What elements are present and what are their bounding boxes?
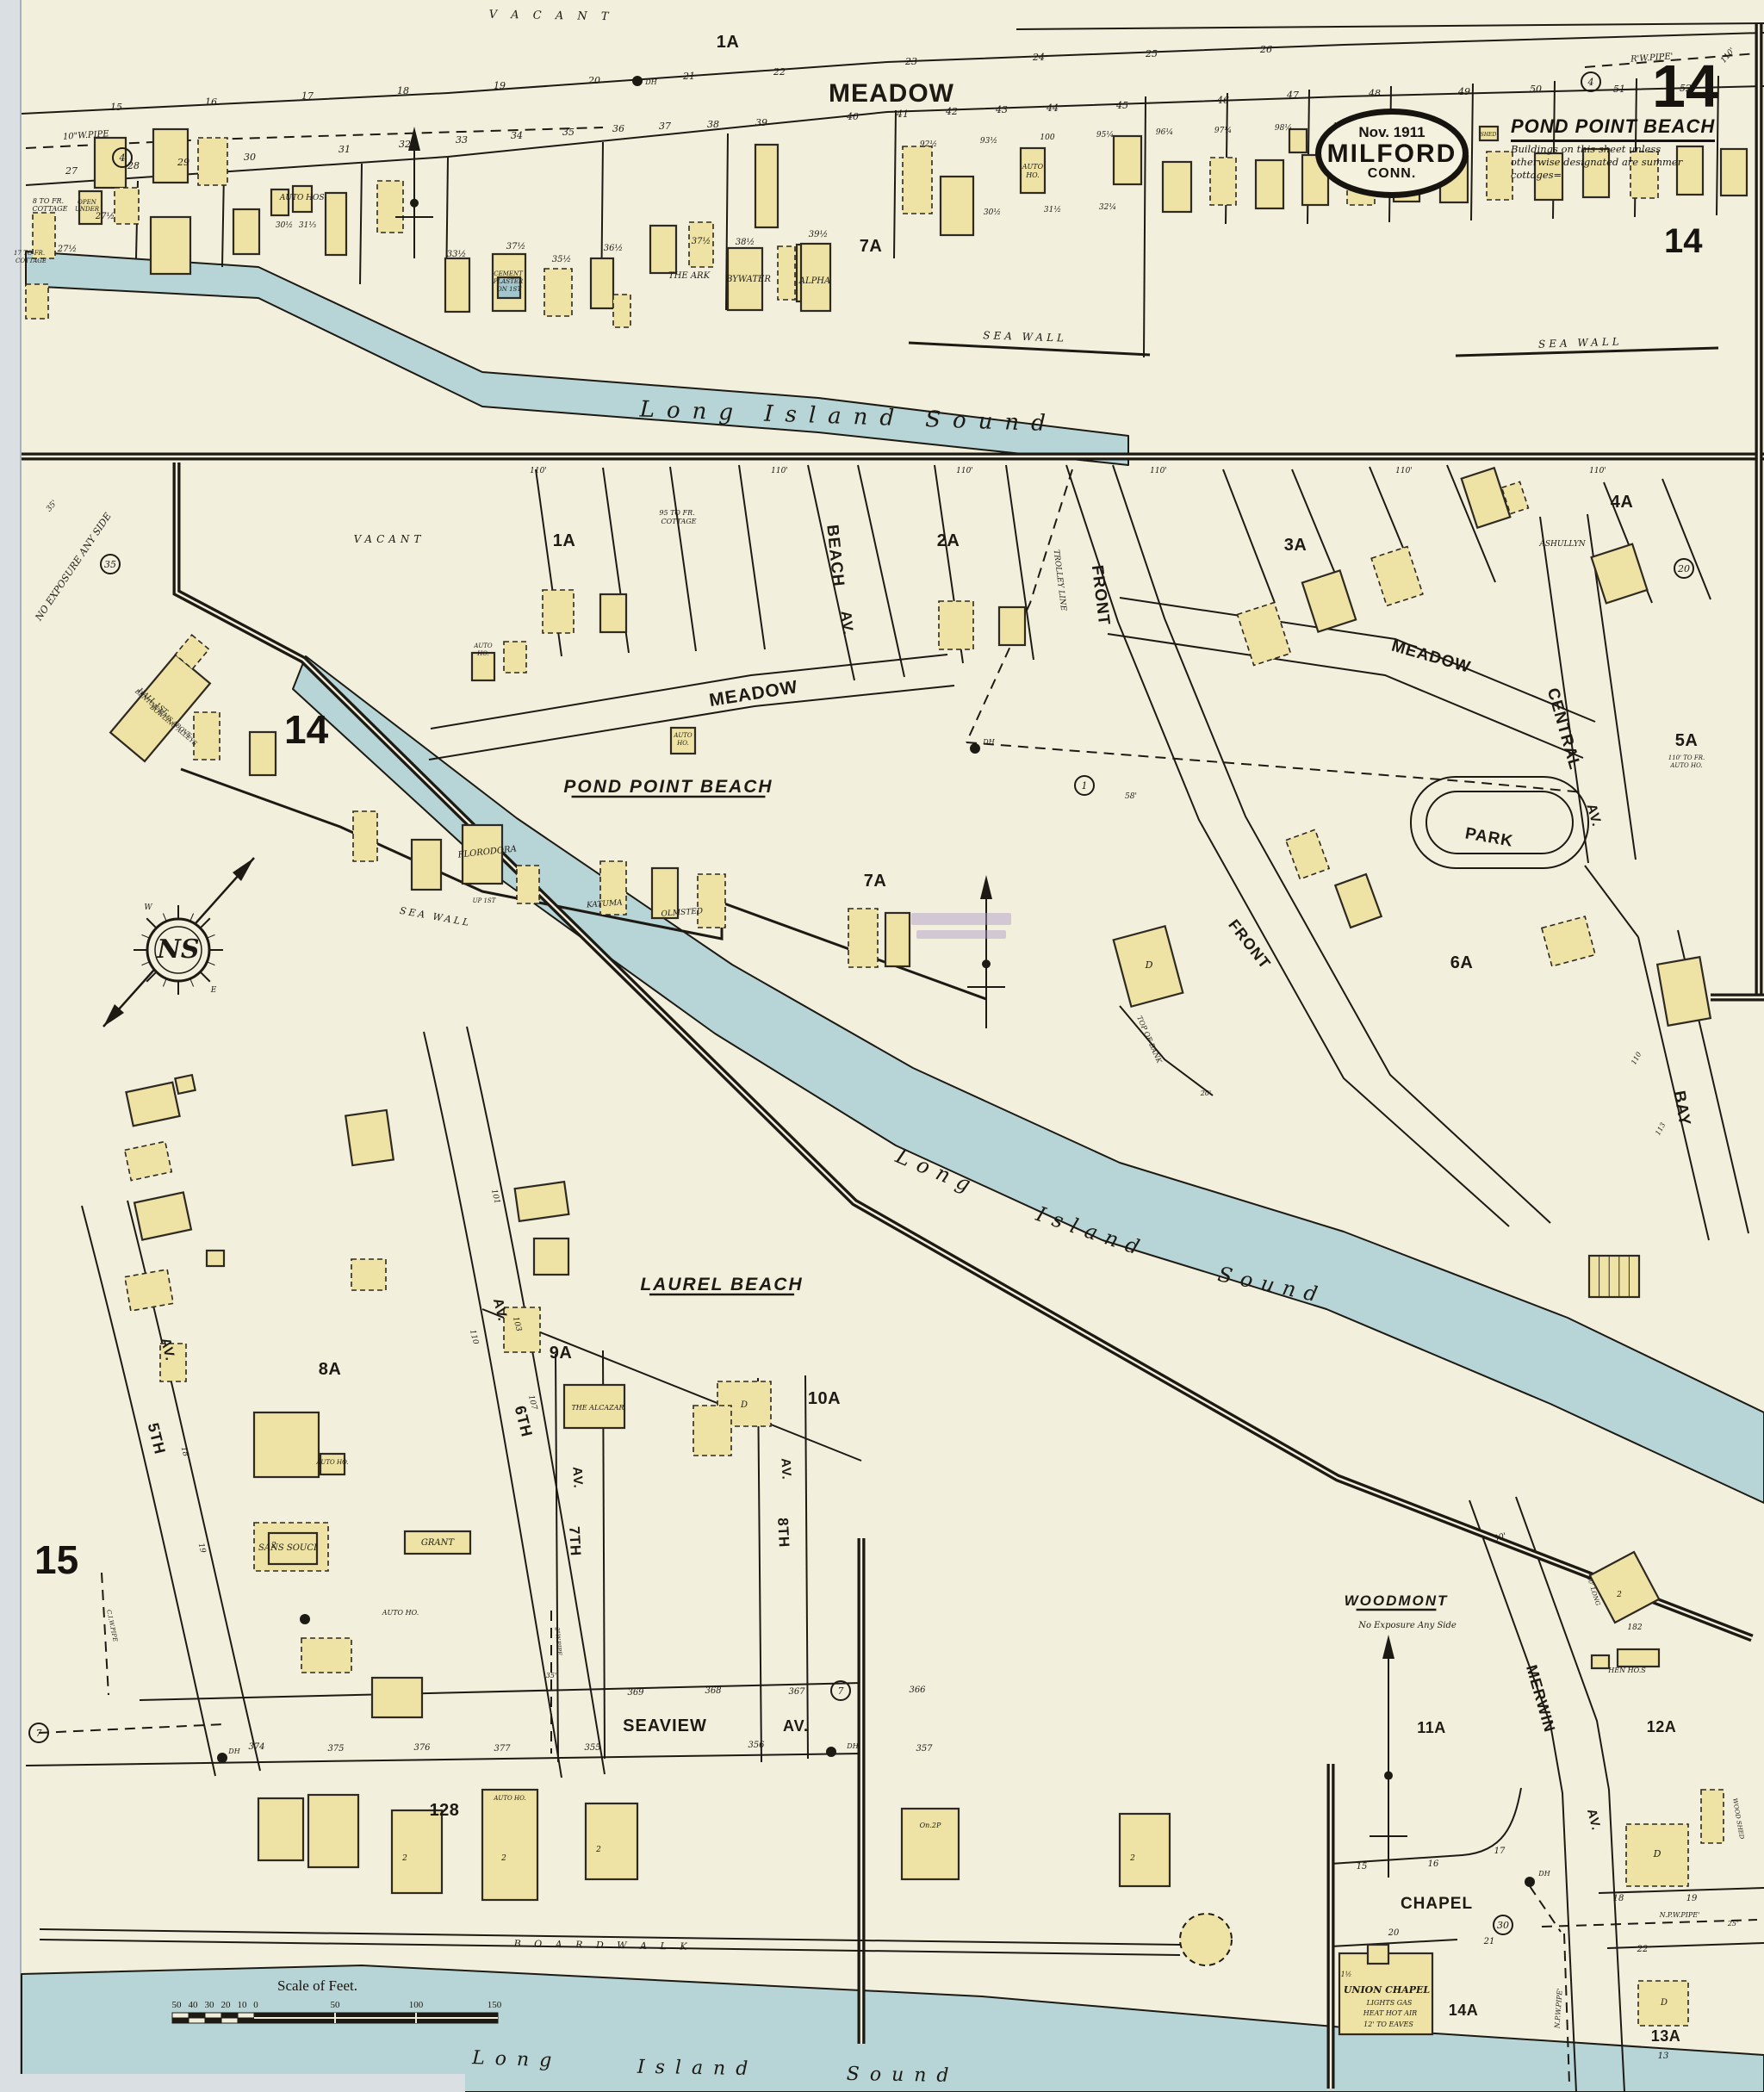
map-label-group: 19 (494, 80, 506, 91)
block-label: 10A (808, 1389, 841, 1408)
map-label-group: 44 (1046, 102, 1059, 114)
map-label-group: 22 (773, 66, 786, 78)
map-label-group: AV. (838, 610, 857, 636)
map-annotation: AUTO HO. (493, 1795, 525, 1802)
map-label-group: UP 1ST (473, 897, 497, 904)
map-annotation: 23 (904, 56, 917, 67)
map-label-group: 27½ (57, 245, 77, 254)
building-footprint (534, 1238, 568, 1275)
building (412, 840, 441, 890)
map-annotation: SHED (1481, 132, 1497, 138)
map-label-group: Sound (847, 2064, 960, 2087)
map-label-group: 31½ (1044, 205, 1061, 214)
hydrant-dot (300, 1614, 310, 1624)
map-annotation: AUTO HO. (315, 1459, 348, 1466)
building (693, 1406, 731, 1456)
street-label: CHAPEL (1401, 1895, 1473, 1913)
building-footprint (902, 1809, 959, 1879)
map-label-group: 49 (1457, 86, 1470, 97)
map-annotation: 2 (1616, 1591, 1622, 1599)
map-label-group: 7TH (566, 1526, 584, 1557)
map-annotation: 22 (1637, 1945, 1649, 1954)
building (151, 217, 190, 274)
map-label-group: 21 (682, 71, 695, 82)
map-label-group: 7A (864, 872, 887, 891)
building-footprint (153, 129, 188, 183)
map-annotation: HO. (476, 650, 489, 657)
map-annotation: OPEN (78, 199, 97, 206)
map-label-group: AUTO (673, 732, 693, 739)
map-label-group: 25 (1145, 48, 1158, 59)
map-label-group: 368 (705, 1686, 721, 1696)
map-label-group: VACANT (354, 533, 425, 545)
map-annotation: 44 (1046, 102, 1059, 114)
map-annotation: 42 (945, 106, 958, 117)
map-label-group: 22 (1637, 1945, 1649, 1954)
building-footprint (1163, 162, 1191, 212)
map-label-group: MEADOW (829, 79, 954, 108)
building-footprint (250, 732, 276, 775)
map-label-group: 3A (1284, 536, 1307, 555)
map-label-group: 17 (1494, 1847, 1506, 1856)
map-label-group: 366 (909, 1685, 926, 1695)
building (586, 1803, 637, 1879)
map-annotation: 93½ (980, 136, 997, 146)
map-annotation: 18 (397, 85, 409, 96)
building (1487, 152, 1512, 200)
map-label-group: AV. (778, 1458, 793, 1481)
scale-tick-label: 10 (238, 2000, 248, 2010)
map-label-group: 29 (177, 157, 189, 168)
map-label-group: 30½ (276, 220, 293, 230)
map-label-group: 17 (301, 90, 314, 102)
map-label-group: 12' TO EAVES (1363, 2021, 1413, 2028)
map-label-group: 35 (562, 127, 575, 138)
building (1120, 1814, 1170, 1886)
building (613, 295, 630, 327)
map-label-group: 2 (595, 1846, 601, 1854)
map-annotation: 25' (1727, 1920, 1738, 1927)
building-footprint (650, 226, 676, 273)
map-label-group: POND POINT BEACH (563, 777, 773, 797)
map-annotation: 377 (494, 1744, 511, 1754)
map-label-group: On.2P (920, 1822, 941, 1829)
water-label: Island (637, 2057, 759, 2080)
map-annotation: UNION CHAPEL (1344, 1984, 1431, 1996)
building (591, 258, 613, 308)
hydrant-dot (1525, 1877, 1535, 1887)
building-footprint (207, 1251, 224, 1266)
map-annotation: COTTAGE (661, 518, 696, 525)
map-annotation: 38 (707, 119, 719, 130)
map-label-group: 110' (956, 467, 973, 475)
scale-cell (172, 2018, 189, 2023)
map-label-group: 100 (1040, 133, 1054, 142)
map-annotation: 100 (1040, 133, 1054, 142)
map-label-group: W (144, 903, 152, 912)
map-label-group: 50 (1530, 84, 1542, 95)
map-annotation: 20' (1200, 1089, 1211, 1097)
map-label-group: 97¼ (1214, 126, 1232, 135)
map-annotation: 15 (1357, 1862, 1368, 1872)
building-footprint (326, 193, 346, 255)
building-footprint (1618, 1649, 1659, 1667)
scale-tick-label: 50 (331, 2000, 341, 2010)
building (848, 909, 878, 967)
map-annotation: 32¼ (1099, 202, 1116, 212)
map-annotation: DH (644, 78, 657, 86)
map-label-group: CEMENT (494, 270, 524, 277)
map-label-group: 355 (584, 1743, 600, 1753)
map-annotation: AUTO HO. (382, 1609, 419, 1617)
map-annotation: 1½ (1341, 1971, 1352, 1978)
map-label-group: 20' (1200, 1089, 1211, 1097)
map-annotation: D (1145, 959, 1153, 971)
map-label-group: OPEN (78, 199, 97, 206)
building-footprint (125, 1269, 173, 1311)
map-label-group: 110' (1589, 467, 1606, 475)
map-label-group: 8A (319, 1360, 342, 1379)
block-label: 5A (1675, 731, 1699, 750)
map-label-group: 13 (1658, 2052, 1669, 2061)
map-label-group: 33½ (447, 250, 466, 259)
map-annotation: D (1653, 1848, 1662, 1859)
map-label-group: 35½ (552, 255, 571, 264)
scale-cell (238, 2013, 254, 2018)
map-label-group: LAUREL BEACH (640, 1275, 803, 1294)
map-label-group: COTTAGE (661, 518, 696, 525)
map-label-group: 110' (1395, 467, 1413, 475)
map-annotation: 49 (1457, 86, 1470, 97)
scale-tick-label: 150 (488, 2000, 502, 2010)
map-annotation: THE ALCAZAR (571, 1404, 624, 1412)
map-annotation: 34 (511, 130, 523, 141)
building (755, 145, 778, 227)
block-label: 8A (319, 1360, 342, 1379)
building (1589, 1256, 1639, 1297)
building-footprint (26, 284, 48, 319)
map-label-group: DH (644, 78, 657, 86)
map-annotation: DH (227, 1747, 240, 1755)
building (698, 874, 725, 928)
map-annotation: 95 TO FR. (659, 509, 694, 517)
map-annotation: 16 (1428, 1859, 1439, 1869)
map-annotation: 22 (773, 66, 786, 78)
map-annotation: DH (1537, 1870, 1550, 1878)
scale-cell (221, 2013, 238, 2018)
map-label-group: LIGHTS GAS (1366, 1999, 1413, 2007)
map-label-group: 16 (205, 96, 217, 108)
scale-cell (238, 2018, 254, 2023)
map-annotation: 356 (748, 1741, 765, 1750)
building (301, 1638, 351, 1673)
map-label-group: 5A (1675, 731, 1699, 750)
map-label-group: AV. (783, 1717, 809, 1735)
map-label-group: 37 (659, 121, 671, 132)
building-footprint (412, 840, 441, 890)
map-annotation: 32 (399, 139, 411, 150)
map-label-group: 95 TO FR. (659, 509, 694, 517)
map-annotation: 368 (705, 1686, 721, 1696)
hydrant-number: 7 (838, 1685, 844, 1697)
sheet-number-small: 14 (1664, 222, 1703, 261)
map-label-group: UNION CHAPEL (1344, 1984, 1431, 1996)
building (544, 269, 572, 316)
map-annotation: 46 (1216, 95, 1229, 106)
map-city: MILFORD (1327, 140, 1457, 168)
map-label-group: 2 (270, 1542, 276, 1550)
map-annotation: 110' (1150, 467, 1167, 475)
map-label-group: 9A (550, 1344, 573, 1363)
map-annotation: HO. (1025, 171, 1040, 179)
map-annotation: 17 (1494, 1847, 1506, 1856)
building (600, 594, 626, 632)
map-annotation: 36½ (604, 244, 623, 253)
scale-cell (189, 2013, 205, 2018)
map-annotation: No Exposure Any Side (1357, 1621, 1457, 1630)
building-footprint (1289, 129, 1307, 152)
map-label-group: 35' (546, 1672, 556, 1679)
map-label-group: 95¼ (1096, 130, 1114, 140)
street-label: AV. (838, 610, 857, 636)
map-annotation: 2 (401, 1854, 407, 1863)
map-label-group: COTTAGE (16, 258, 47, 264)
map-label-group: 32 (399, 139, 411, 150)
building-footprint (515, 1182, 569, 1221)
block-label: 128 (430, 1801, 460, 1820)
map-annotation: COTTAGE (32, 205, 67, 213)
map-label-group: 2 (1129, 1854, 1135, 1863)
map-label-group: AUTO HO. (1669, 762, 1702, 769)
map-label-group: 43 (995, 104, 1008, 115)
map-label-group: AUTO HOS. (279, 194, 326, 202)
map-annotation: 50 (1530, 84, 1542, 95)
map-annotation: SANS SOUCI (258, 1543, 318, 1553)
map-annotation: 35 (562, 127, 575, 138)
building-footprint (1021, 148, 1045, 193)
map-label-group: 39½ (809, 230, 828, 239)
map-annotation: E (210, 986, 217, 995)
map-label-group: E (210, 986, 217, 995)
map-label-group: 6A (1450, 953, 1474, 972)
map-annotation: 58' (1125, 792, 1137, 801)
scale-cell (205, 2018, 221, 2023)
map-label-group: 18 (1613, 1894, 1624, 1903)
map-label-group: 10A (808, 1389, 841, 1408)
boardwalk-pavilion (1180, 1914, 1232, 1965)
map-state: CONN. (1368, 167, 1417, 182)
building (377, 181, 403, 233)
block-label: 13A (1651, 2027, 1681, 2045)
street-label: SEAVIEW (623, 1716, 707, 1735)
map-annotation: CEMENT (494, 270, 524, 277)
building-footprint (1589, 1256, 1639, 1297)
north-arrow-dot (410, 199, 419, 208)
sanborn-map-sheet: 44352017730NS5040302010050100150MEADOWV … (0, 0, 1764, 2092)
block-label: 1A (717, 33, 740, 52)
map-label-group: AUTO (1022, 163, 1044, 171)
building-footprint (377, 181, 403, 233)
map-annotation: 19 (1686, 1894, 1698, 1903)
map-label-group: THE ARK (668, 271, 711, 281)
building-footprint (372, 1678, 422, 1717)
map-label-group: 8TH (774, 1518, 792, 1549)
map-annotation: 37 (659, 121, 671, 132)
building-footprint (504, 642, 526, 673)
map-label-group: 1A (717, 33, 740, 52)
map-annotation: 96¼ (1156, 127, 1173, 137)
map-label-group: 20 (1388, 1928, 1400, 1938)
map-label-group: No Exposure Any Side (1357, 1621, 1457, 1630)
scan-backing (0, 2074, 465, 2092)
map-annotation: 369 (627, 1688, 644, 1698)
map-label-group: AUTO HO. (493, 1795, 525, 1802)
map-label-group: 15 (1357, 1862, 1368, 1872)
map-label-group: HO. (476, 650, 489, 657)
map-label-group: 2 (1616, 1591, 1622, 1599)
map-label-group: HO. (676, 740, 689, 747)
street-label: AV. (783, 1717, 809, 1735)
north-arrow-dot (982, 959, 991, 968)
hydrant-number: 7 (36, 1728, 42, 1739)
map-annotation: HO. (676, 740, 689, 747)
map-label-group: 19 (1686, 1894, 1698, 1903)
map-annotation: HEN HO.S (1607, 1667, 1646, 1674)
map-annotation: AUTO (673, 732, 693, 739)
map-annotation: ON 1ST (497, 286, 522, 293)
building (1021, 148, 1045, 193)
map-label-group: D (1660, 1998, 1668, 2008)
map-label-group: D (740, 1400, 748, 1410)
map-label-group: Island (637, 2057, 759, 2080)
map-annotation: AUTO (1022, 163, 1044, 171)
building (175, 1075, 195, 1094)
map-label-group: 20 (587, 75, 600, 86)
map-annotation: ASHULLYN (1538, 540, 1586, 549)
map-annotation: 39½ (809, 230, 828, 239)
map-label-group: SEAVIEW (623, 1716, 707, 1735)
building (1701, 1790, 1724, 1843)
map-label-group: 110' TO FR. (1668, 754, 1705, 761)
map-label-group: 38½ (736, 238, 755, 247)
building-footprint (1487, 152, 1512, 200)
map-label-group: 12A (1647, 1718, 1677, 1735)
north-arrow-dot (1384, 1772, 1393, 1780)
scale-cell (205, 2013, 221, 2018)
building (1114, 136, 1141, 184)
map-label-group: 31 (339, 144, 351, 155)
water-label: Sound (847, 2064, 960, 2087)
map-annotation: D (740, 1400, 748, 1410)
map-label-group: Long (471, 2047, 562, 2072)
map-annotation: 2 (595, 1846, 601, 1854)
map-label-group: 93½ (980, 136, 997, 146)
map-annotation: COTTAGE (16, 258, 47, 264)
map-label-group: AUTO HO. (382, 1609, 419, 1617)
map-label-group: 376 (413, 1743, 431, 1753)
publisher-date-stamp: Nov. 1911 MILFORD CONN. (1315, 109, 1469, 198)
building (1592, 1655, 1609, 1668)
building-footprint (1368, 1945, 1388, 1964)
map-annotation: AUTO HOS. (279, 194, 326, 202)
map-annotation: 2 (500, 1854, 506, 1863)
map-label-group: 15 (110, 102, 122, 113)
map-label-group: 11A (1417, 1719, 1446, 1736)
map-label-group: 34 (511, 130, 523, 141)
map-label-group: 21 (1483, 1937, 1495, 1946)
building (445, 258, 469, 312)
map-label-group: 2 (500, 1854, 506, 1863)
map-label-group: 40 (846, 111, 859, 122)
scale-cell (189, 2018, 205, 2023)
map-annotation: 376 (413, 1743, 431, 1753)
water-label: Long (471, 2047, 562, 2072)
map-annotation: 38½ (736, 238, 755, 247)
map-annotation: 29 (177, 157, 189, 168)
building-footprint (1701, 1790, 1724, 1843)
ink-stamp-line (916, 930, 1006, 939)
map-annotation: 2 (1129, 1854, 1135, 1863)
street-label: AV. (569, 1467, 585, 1489)
map-label-group: D (1653, 1848, 1662, 1859)
map-annotation: 37½ (506, 242, 525, 251)
map-label-group: 47 (1286, 90, 1299, 101)
building (153, 129, 188, 183)
map-annotation: On.2P (920, 1822, 941, 1829)
building (941, 177, 973, 235)
building-footprint (848, 909, 878, 967)
map-annotation: VACANT (354, 533, 425, 545)
map-label-group: 24 (1032, 52, 1045, 63)
building (26, 284, 48, 319)
map-label-group: 18 (397, 85, 409, 96)
map-annotation: 51 (1613, 84, 1625, 95)
map-annotation: 97¼ (1214, 126, 1232, 135)
map-label-group: 41 (896, 109, 909, 120)
map-label-group: 92½ (920, 140, 937, 149)
building (504, 642, 526, 673)
map-label-group: 13A (1651, 2027, 1681, 2045)
map-label-group: 28 (127, 160, 140, 171)
building (308, 1795, 358, 1867)
map-label-group: 377 (494, 1744, 511, 1754)
building-footprint (115, 188, 139, 224)
map-annotation: 2 (270, 1542, 276, 1550)
map-label-group: 58' (1125, 792, 1137, 801)
building (254, 1412, 319, 1477)
scale-tick-label: 0 (253, 2000, 258, 2010)
map-annotation: 98¼ (1275, 123, 1292, 133)
map-label-group: 375 (327, 1744, 344, 1754)
map-annotation: 18 (1613, 1894, 1624, 1903)
building-footprint (1210, 158, 1236, 205)
map-label-group: 16 (1428, 1859, 1439, 1869)
map-annotation: PLASTER (493, 278, 524, 285)
map-annotation: 31⅓ (299, 221, 316, 230)
hydrant-dot (826, 1747, 836, 1757)
map-annotation: 110' TO FR. (1668, 754, 1705, 761)
building-footprint (175, 1075, 195, 1094)
map-annotation: 374 (248, 1742, 264, 1752)
map-annotation: 17 TO FR. (14, 250, 45, 257)
map-label-group: 369 (627, 1688, 644, 1698)
district-title: POND POINT BEACH (563, 777, 773, 797)
map-label-group: 27 (65, 165, 78, 177)
building (250, 732, 276, 775)
building (392, 1810, 442, 1893)
scale-tick-label: 30 (205, 2000, 215, 2010)
map-label-group: 26 (1259, 44, 1272, 55)
